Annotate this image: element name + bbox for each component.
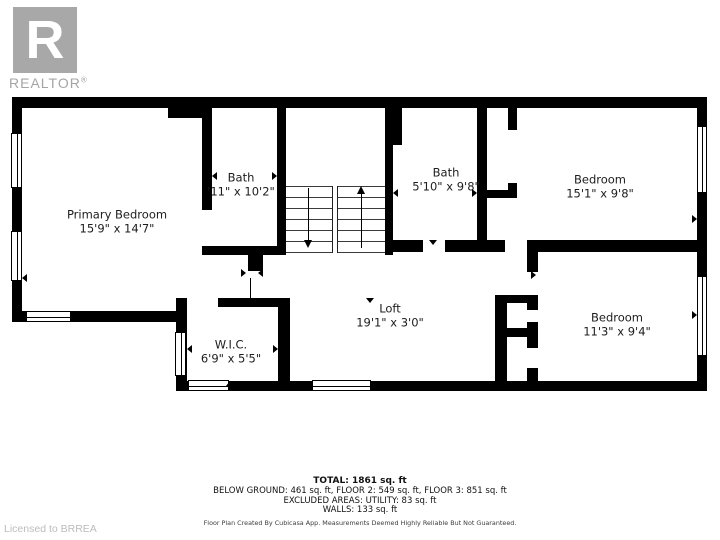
measure-tick: [393, 189, 398, 197]
wall-bottom: [176, 381, 707, 391]
realtor-wordmark: REALTOR®: [9, 75, 88, 91]
measure-tick: [613, 381, 621, 386]
room-name: Loft: [356, 303, 424, 317]
room-label-wic: W.I.C. 6'9" x 5'5": [201, 339, 261, 366]
wall-separator-b: [445, 240, 505, 252]
room-label-bedroom-bottom-right: Bedroom 11'3" x 9'4": [583, 312, 651, 339]
arrow-head: [357, 186, 365, 194]
window: [11, 133, 22, 188]
room-dims: 15'1" x 9'8": [566, 187, 634, 201]
measure-tick: [613, 103, 621, 108]
room-name: W.I.C.: [201, 339, 261, 353]
window: [175, 332, 186, 376]
measure-tick: [94, 311, 102, 316]
room-name: Bedroom: [583, 312, 651, 326]
wall-bedroom2-left: [527, 252, 538, 272]
door-leaf-line: [250, 278, 251, 298]
room-label-bedroom-top-right: Bedroom 15'1" x 9'8": [566, 174, 634, 201]
measure-tick: [273, 345, 278, 353]
arrow-shaft: [361, 193, 362, 248]
floor-plan-page: R REALTOR®: [0, 0, 720, 540]
room-dims: 5'10" x 9'8": [412, 180, 480, 194]
window: [11, 231, 22, 281]
window: [697, 126, 707, 193]
wall-closet-stub-1: [527, 295, 538, 310]
door-tick: [241, 269, 246, 277]
stair-up-arrow: [357, 186, 365, 248]
measure-tick: [620, 240, 628, 245]
stair-down-arrow: [304, 188, 312, 248]
measure-tick: [226, 298, 234, 303]
wall-bath1-right: [277, 108, 286, 255]
room-name: Bath: [207, 172, 275, 186]
room-dims: 15'9" x 14'7": [67, 222, 167, 236]
wall-top-notch: [168, 108, 204, 118]
measure-tick: [226, 381, 234, 386]
room-label-loft: Loft 19'1" x 3'0": [356, 303, 424, 330]
room-dims: '11" x 10'2": [207, 185, 275, 199]
room-name: Bedroom: [566, 174, 634, 188]
wall-bath1-bottom: [202, 246, 286, 255]
room-name: Primary Bedroom: [67, 209, 167, 223]
room-dims: 6'9" x 5'5": [201, 352, 261, 366]
door-tick: [258, 269, 263, 277]
measure-tick: [692, 311, 697, 319]
room-dims: 11'3" x 9'4": [583, 325, 651, 339]
licensed-to-text: Licensed to BRREA: [4, 523, 97, 535]
room-label-primary-bedroom: Primary Bedroom 15'9" x 14'7": [67, 209, 167, 236]
realtor-logo: R: [13, 7, 77, 73]
realtor-logo-letter: R: [26, 13, 65, 67]
measure-tick: [187, 345, 192, 353]
wall-nook-right-upper: [508, 97, 517, 130]
window: [188, 380, 229, 391]
summary-disclaimer: Floor Plan Created By Cubicasa App. Meas…: [0, 519, 720, 529]
wall-top: [12, 97, 707, 108]
summary-walls: WALLS: 133 sq. ft: [0, 506, 720, 516]
window: [312, 380, 371, 391]
wall-stairwell-notch: [393, 97, 402, 145]
window: [26, 311, 71, 322]
door-tick: [531, 271, 536, 279]
wall-closet-stub-3: [527, 368, 538, 382]
measure-tick: [692, 215, 697, 223]
measure-tick: [429, 240, 437, 245]
wall-separator-a: [385, 240, 423, 252]
wall-nook-bottom: [487, 190, 517, 198]
stair-divider: [332, 186, 338, 253]
arrow-head: [304, 240, 312, 248]
window: [697, 276, 707, 356]
measure-tick: [92, 103, 100, 108]
arrow-shaft: [308, 188, 309, 241]
measure-tick: [477, 217, 482, 225]
measure-tick: [239, 103, 247, 108]
wall-separator-c: [527, 240, 707, 252]
wall-wic-right: [278, 298, 290, 391]
wall-closet-stub-2: [527, 322, 538, 348]
measure-tick: [320, 103, 328, 108]
room-name: Bath: [412, 167, 480, 181]
room-label-bath-middle: Bath 5'10" x 9'8": [412, 167, 480, 194]
area-summary: TOTAL: 1861 sq. ft BELOW GROUND: 461 sq.…: [0, 477, 720, 529]
wall-stairwell-right: [385, 97, 393, 255]
measure-tick: [22, 274, 27, 282]
wall-left: [12, 97, 22, 322]
room-dims: 19'1" x 3'0": [356, 316, 424, 330]
wall-closet-left: [495, 295, 507, 383]
room-label-bath-upper: Bath '11" x 10'2": [207, 172, 275, 199]
